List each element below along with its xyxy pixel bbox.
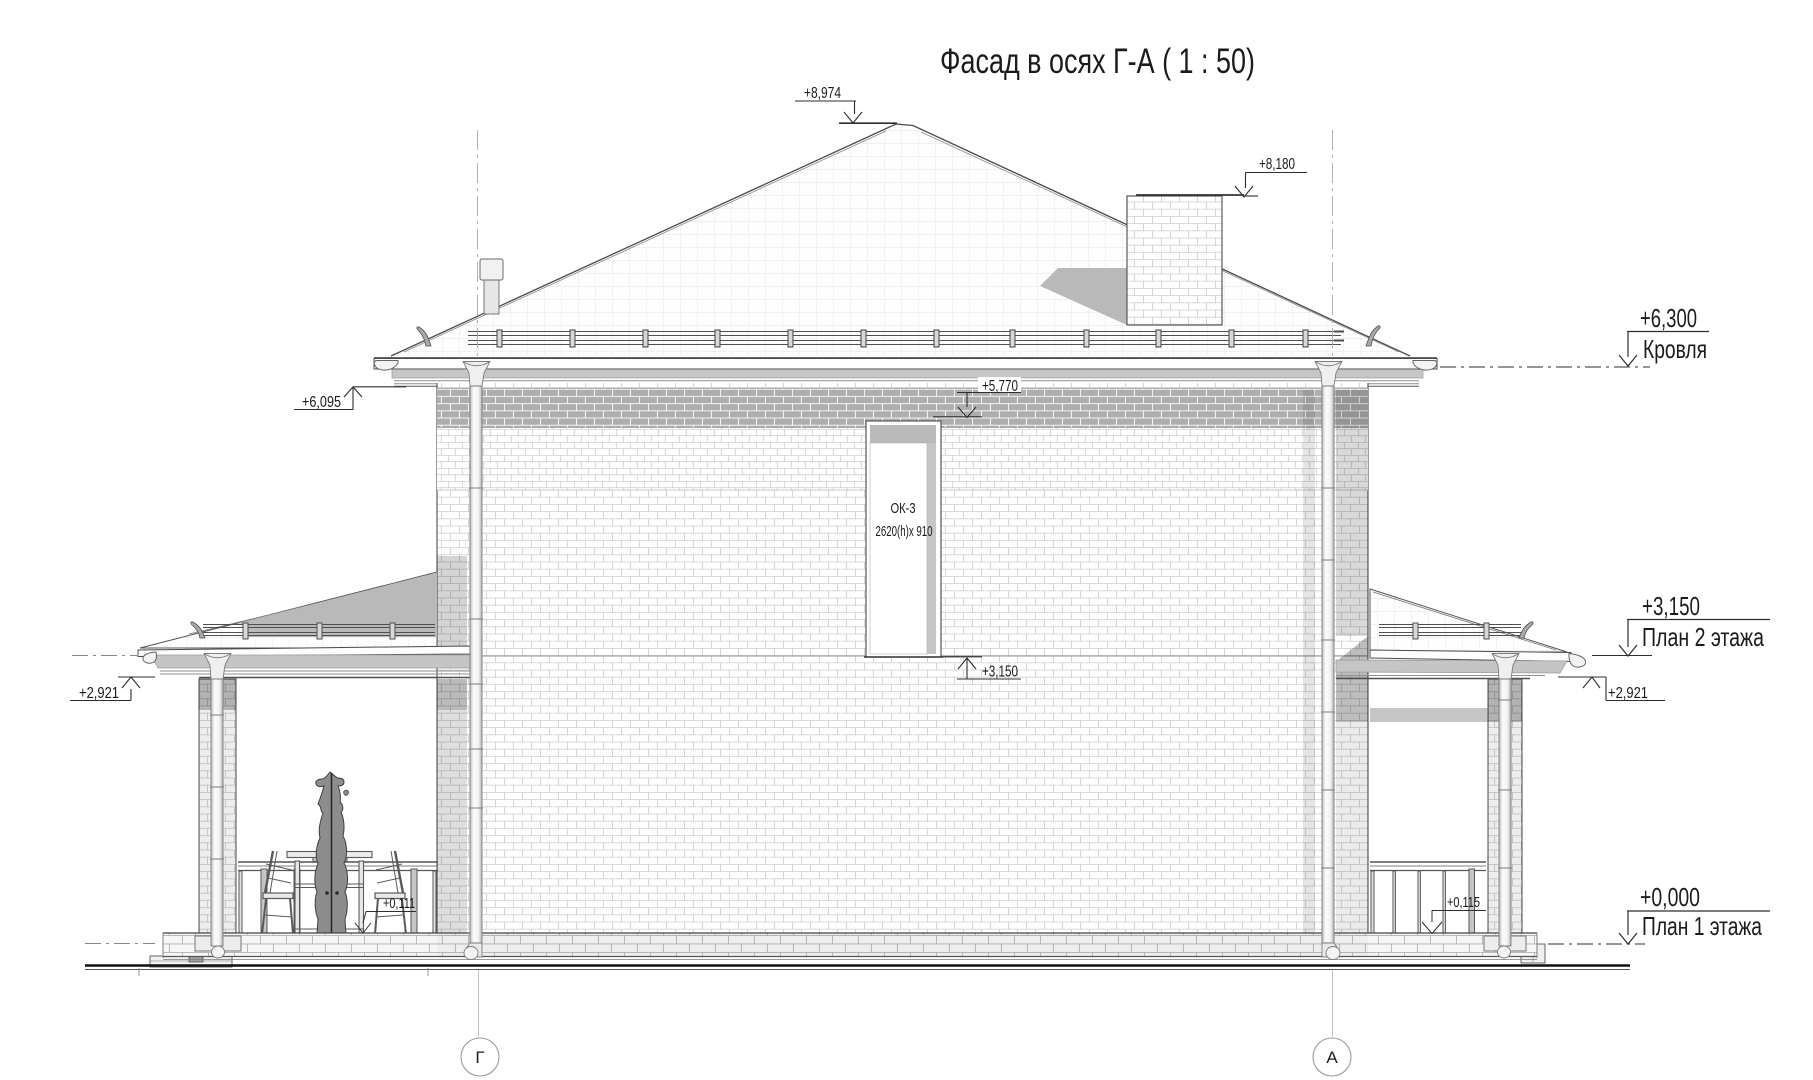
svg-text:2620(h)x 910: 2620(h)x 910 (876, 523, 933, 540)
svg-text:+0,115: +0,115 (1447, 894, 1480, 911)
svg-text:+6,300: +6,300 (1640, 303, 1697, 333)
svg-text:+8,180: +8,180 (1259, 156, 1295, 173)
svg-text:+0,111: +0,111 (383, 895, 415, 912)
svg-text:+3,150: +3,150 (982, 664, 1018, 681)
svg-text:+2,921: +2,921 (79, 685, 119, 702)
svg-text:+6,095: +6,095 (302, 394, 341, 411)
svg-text:+3,150: +3,150 (1642, 591, 1700, 621)
svg-text:+8,974: +8,974 (804, 85, 841, 102)
svg-text:План 2 этажа: План 2 этажа (1642, 622, 1764, 652)
svg-text:План 1 этажа: План 1 этажа (1642, 911, 1762, 941)
svg-text:+0,000: +0,000 (1640, 882, 1700, 912)
svg-text:+5,770: +5,770 (982, 378, 1018, 395)
svg-text:+2,921: +2,921 (1608, 685, 1648, 702)
svg-text:А: А (1326, 1048, 1338, 1067)
svg-text:Кровля: Кровля (1643, 334, 1707, 364)
svg-text:ОК-3: ОК-3 (891, 500, 916, 517)
svg-text:Г: Г (475, 1048, 484, 1067)
svg-text:Фасад в осях Г-А ( 1 : 50): Фасад в осях Г-А ( 1 : 50) (940, 42, 1255, 81)
